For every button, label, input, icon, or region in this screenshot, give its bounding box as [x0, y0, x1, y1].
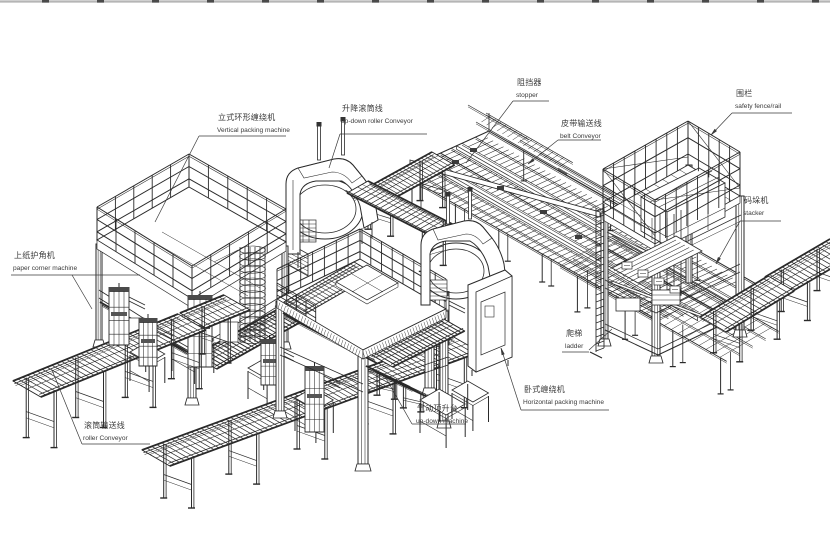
svg-text:ladder: ladder [565, 343, 584, 350]
svg-text:roller Conveyor: roller Conveyor [83, 435, 129, 442]
svg-text:stacker: stacker [743, 210, 765, 217]
svg-text:皮带输送线: 皮带输送线 [561, 118, 602, 128]
svg-text:paper corner machine: paper corner machine [13, 265, 77, 272]
svg-text:stopper: stopper [516, 92, 539, 99]
svg-text:卧式缠绕机: 卧式缠绕机 [524, 384, 565, 394]
svg-text:belt Conveyor: belt Conveyor [560, 133, 601, 140]
svg-text:阻挡器: 阻挡器 [517, 77, 542, 87]
svg-text:升降滚筒线: 升降滚筒线 [342, 103, 383, 113]
svg-text:Vertical packing machine: Vertical packing machine [217, 127, 290, 134]
svg-text:立式环形缠绕机: 立式环形缠绕机 [218, 112, 275, 122]
svg-text:up-down roller Conveyor: up-down roller Conveyor [341, 118, 414, 125]
svg-text:爬梯: 爬梯 [566, 328, 582, 338]
svg-text:Horizontal packing machine: Horizontal packing machine [523, 399, 604, 406]
svg-text:上纸护角机: 上纸护角机 [14, 250, 55, 260]
svg-text:码垛机: 码垛机 [744, 195, 769, 205]
svg-text:滚筒输送线: 滚筒输送线 [84, 420, 125, 430]
svg-text:围栏: 围栏 [736, 88, 752, 98]
svg-text:气动顶升台: 气动顶升台 [417, 403, 458, 413]
svg-text:safety fence/rail: safety fence/rail [735, 103, 782, 110]
